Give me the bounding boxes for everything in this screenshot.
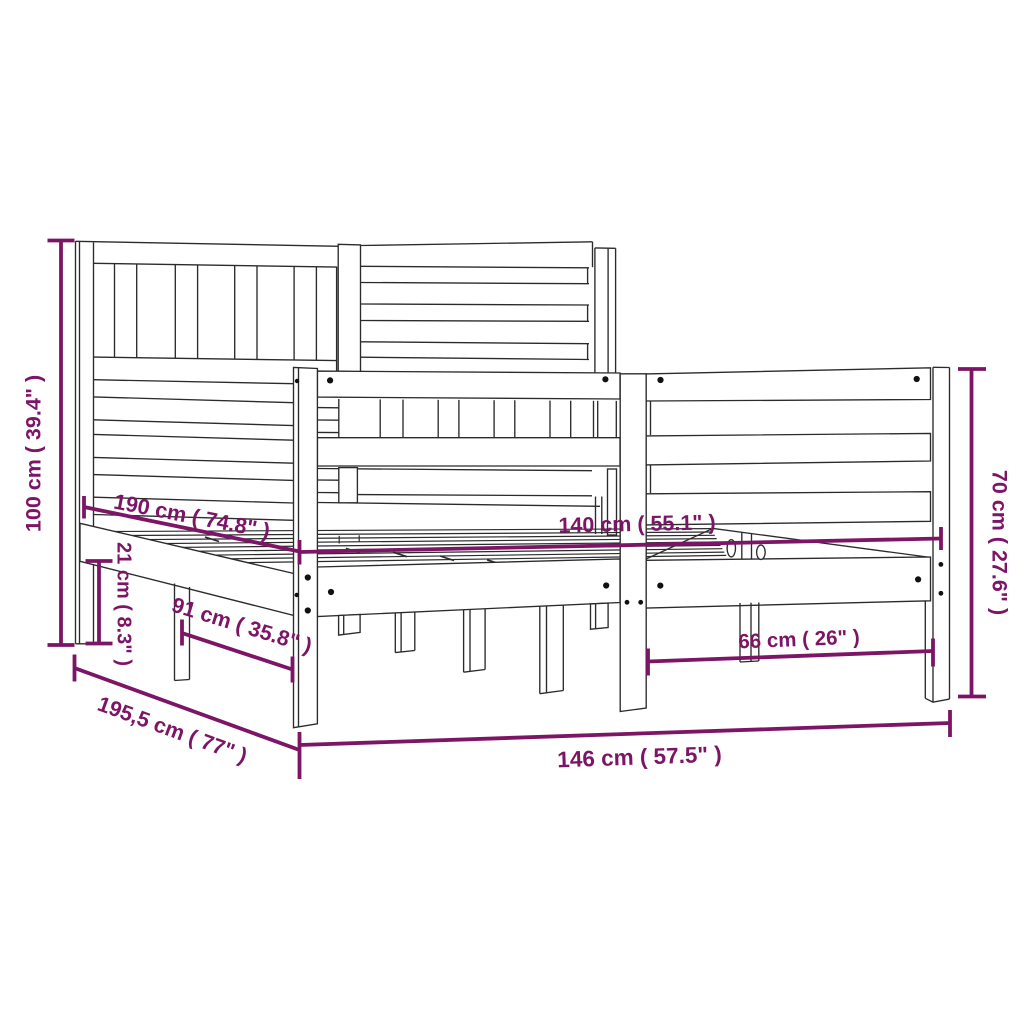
svg-text:146 cm ( 57.5" ): 146 cm ( 57.5" ) bbox=[557, 742, 722, 773]
svg-text:140 cm ( 55.1" ): 140 cm ( 55.1" ) bbox=[558, 510, 716, 537]
svg-text:66 cm ( 26" ): 66 cm ( 26" ) bbox=[738, 626, 860, 654]
svg-text:21 cm ( 8.3" ): 21 cm ( 8.3" ) bbox=[113, 542, 135, 666]
svg-text:100 cm ( 39.4" ): 100 cm ( 39.4" ) bbox=[22, 375, 46, 532]
svg-text:70 cm ( 27.6" ): 70 cm ( 27.6" ) bbox=[988, 470, 1012, 615]
